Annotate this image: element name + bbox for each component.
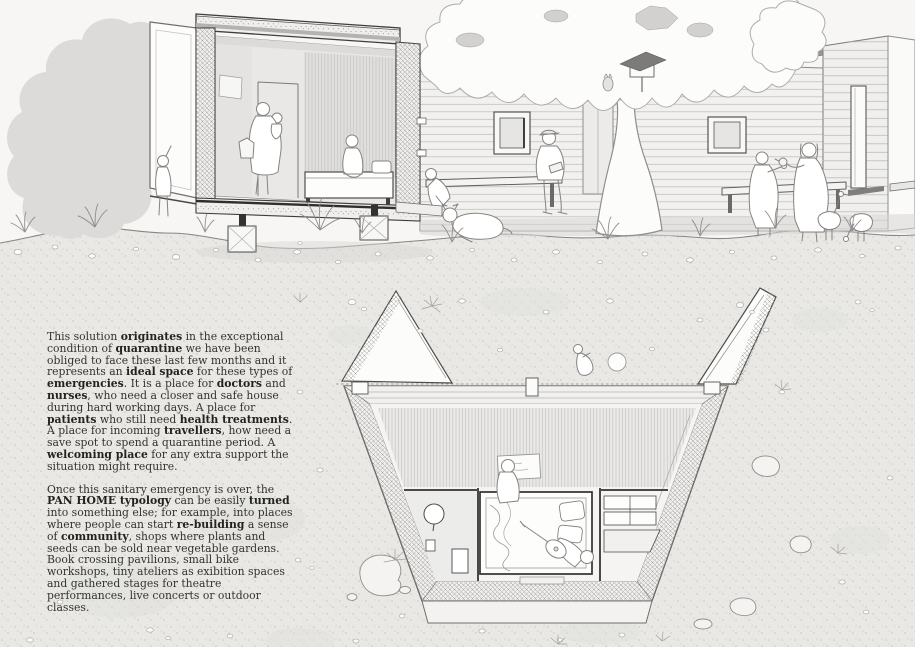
cabin-section xyxy=(150,14,442,263)
round-table xyxy=(424,504,444,524)
slot-window xyxy=(851,86,866,188)
window-left xyxy=(494,112,530,154)
white-panel xyxy=(888,36,915,231)
text-panel: This solution originates in the exceptio… xyxy=(47,331,299,624)
paragraph-after-emergency: Once this sanitary emergency is over, th… xyxy=(47,484,299,614)
paragraph-quarantine-origin: This solution originates in the exceptio… xyxy=(47,331,299,473)
pier-left xyxy=(228,214,256,252)
wall-picture xyxy=(219,75,242,99)
window-right xyxy=(708,117,746,153)
canopy-right-fringe xyxy=(750,1,826,72)
base-slab xyxy=(422,601,652,623)
wall-left-section xyxy=(196,28,215,200)
door-mat xyxy=(520,577,564,584)
cat-on-branch xyxy=(603,74,613,91)
presentation-board: This solution originates in the exceptio… xyxy=(0,0,915,647)
interior-left-wall xyxy=(215,44,252,196)
ball xyxy=(608,353,626,371)
